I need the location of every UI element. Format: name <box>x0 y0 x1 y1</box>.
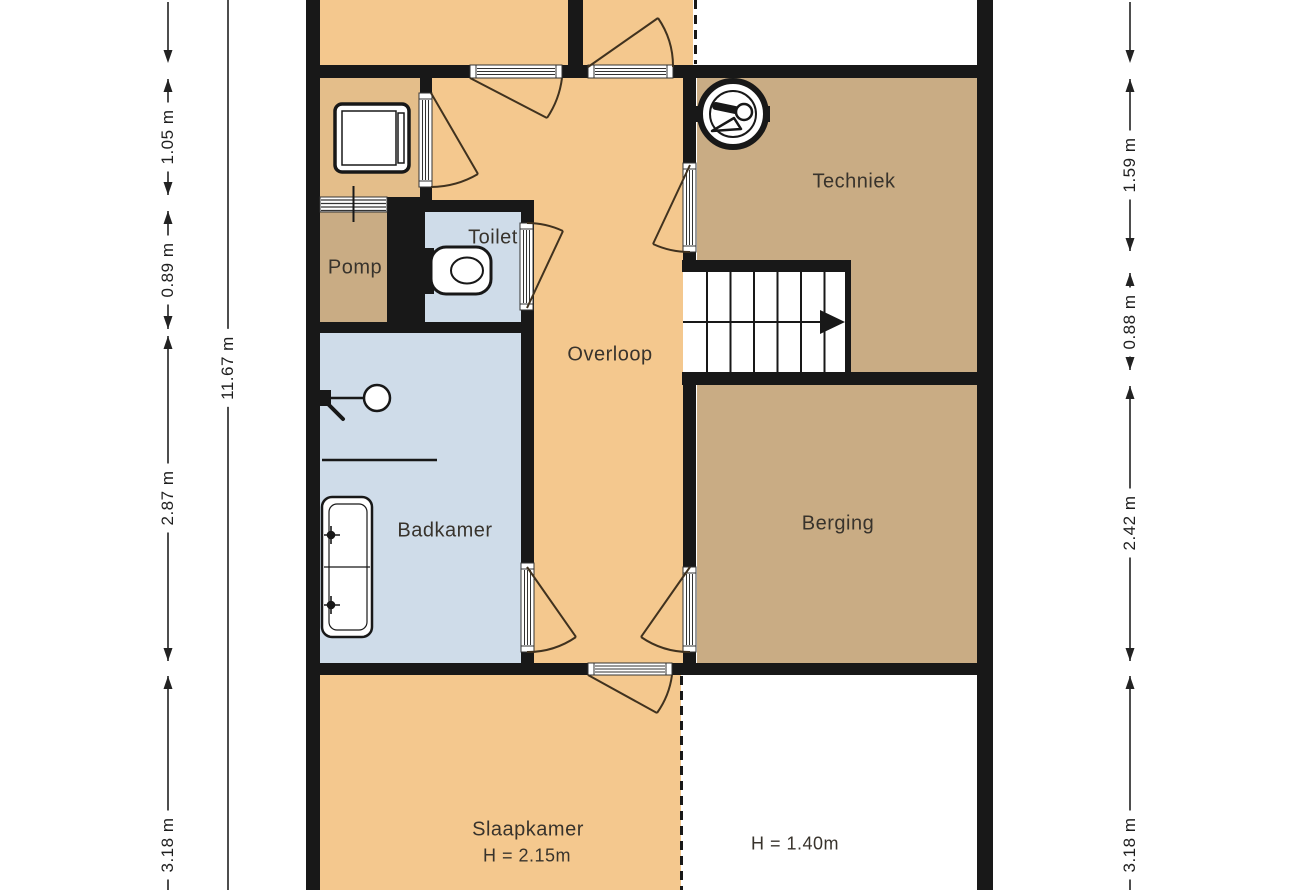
washing-machine-icon <box>335 104 409 172</box>
dim-right-1: 1.59 m <box>1119 131 1141 200</box>
dim-right-4: 3.18 m <box>1119 811 1141 880</box>
double-sink-icon <box>322 497 372 637</box>
room-label-toilet: Toilet <box>468 227 518 250</box>
toilet-icon <box>425 247 491 294</box>
room-label-pomp: Pomp <box>328 257 382 280</box>
boiler-icon <box>695 81 770 147</box>
dim-right-2: 0.88 m <box>1119 288 1141 357</box>
floor-plan-drawing <box>0 0 1300 890</box>
room-height-note-slaapkamer: H = 2.15m <box>483 846 571 867</box>
room-label-slaapkamer: Slaapkamer <box>472 819 584 842</box>
room-label-badkamer: Badkamer <box>397 520 492 543</box>
dim-left-3: 2.87 m <box>157 464 179 533</box>
dim-left-4: 3.18 m <box>157 811 179 880</box>
room-label-overloop: Overloop <box>567 344 652 367</box>
room-height-note-attic: H = 1.40m <box>751 834 839 855</box>
room-label-techniek: Techniek <box>813 171 896 194</box>
dim-left-total: 11.67 m <box>217 329 239 407</box>
stairs-icon <box>683 272 845 372</box>
dim-left-2: 0.89 m <box>157 236 179 305</box>
dim-left-1: 1.05 m <box>157 103 179 172</box>
dim-right-3: 2.42 m <box>1119 489 1141 558</box>
room-label-berging: Berging <box>802 513 874 536</box>
floor-plan: Techniek Toilet Pomp Overloop Badkamer B… <box>0 0 1300 890</box>
